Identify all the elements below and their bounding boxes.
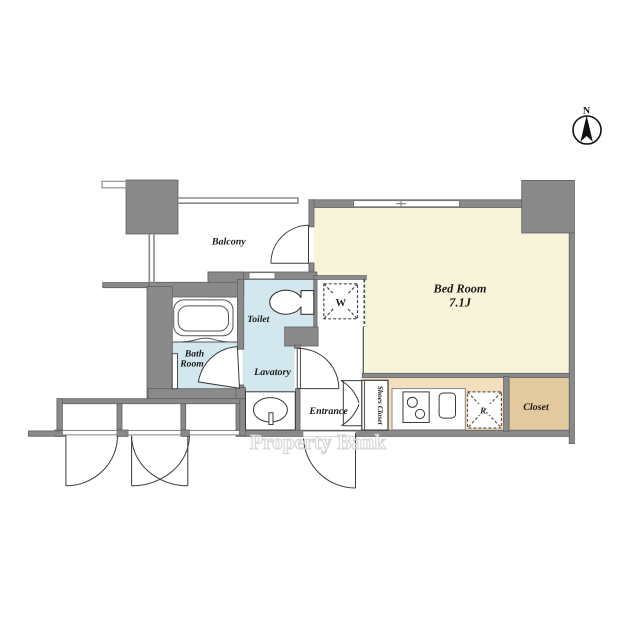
svg-text:7.1J: 7.1J (449, 296, 472, 310)
svg-text:Balcony: Balcony (211, 236, 246, 247)
svg-text:Toilet: Toilet (247, 314, 269, 325)
svg-text:Shoes Closet: Shoes Closet (376, 386, 385, 426)
svg-text:R.: R. (479, 405, 488, 415)
svg-text:W: W (336, 298, 347, 309)
svg-text:Property Bank: Property Bank (250, 430, 386, 454)
svg-text:Lavatory: Lavatory (253, 367, 291, 378)
svg-text:Bed Room: Bed Room (433, 282, 487, 296)
svg-text:Entrance: Entrance (308, 406, 348, 417)
svg-text:Room: Room (179, 359, 203, 370)
svg-text:N: N (583, 106, 591, 117)
svg-text:Closet: Closet (523, 402, 550, 413)
